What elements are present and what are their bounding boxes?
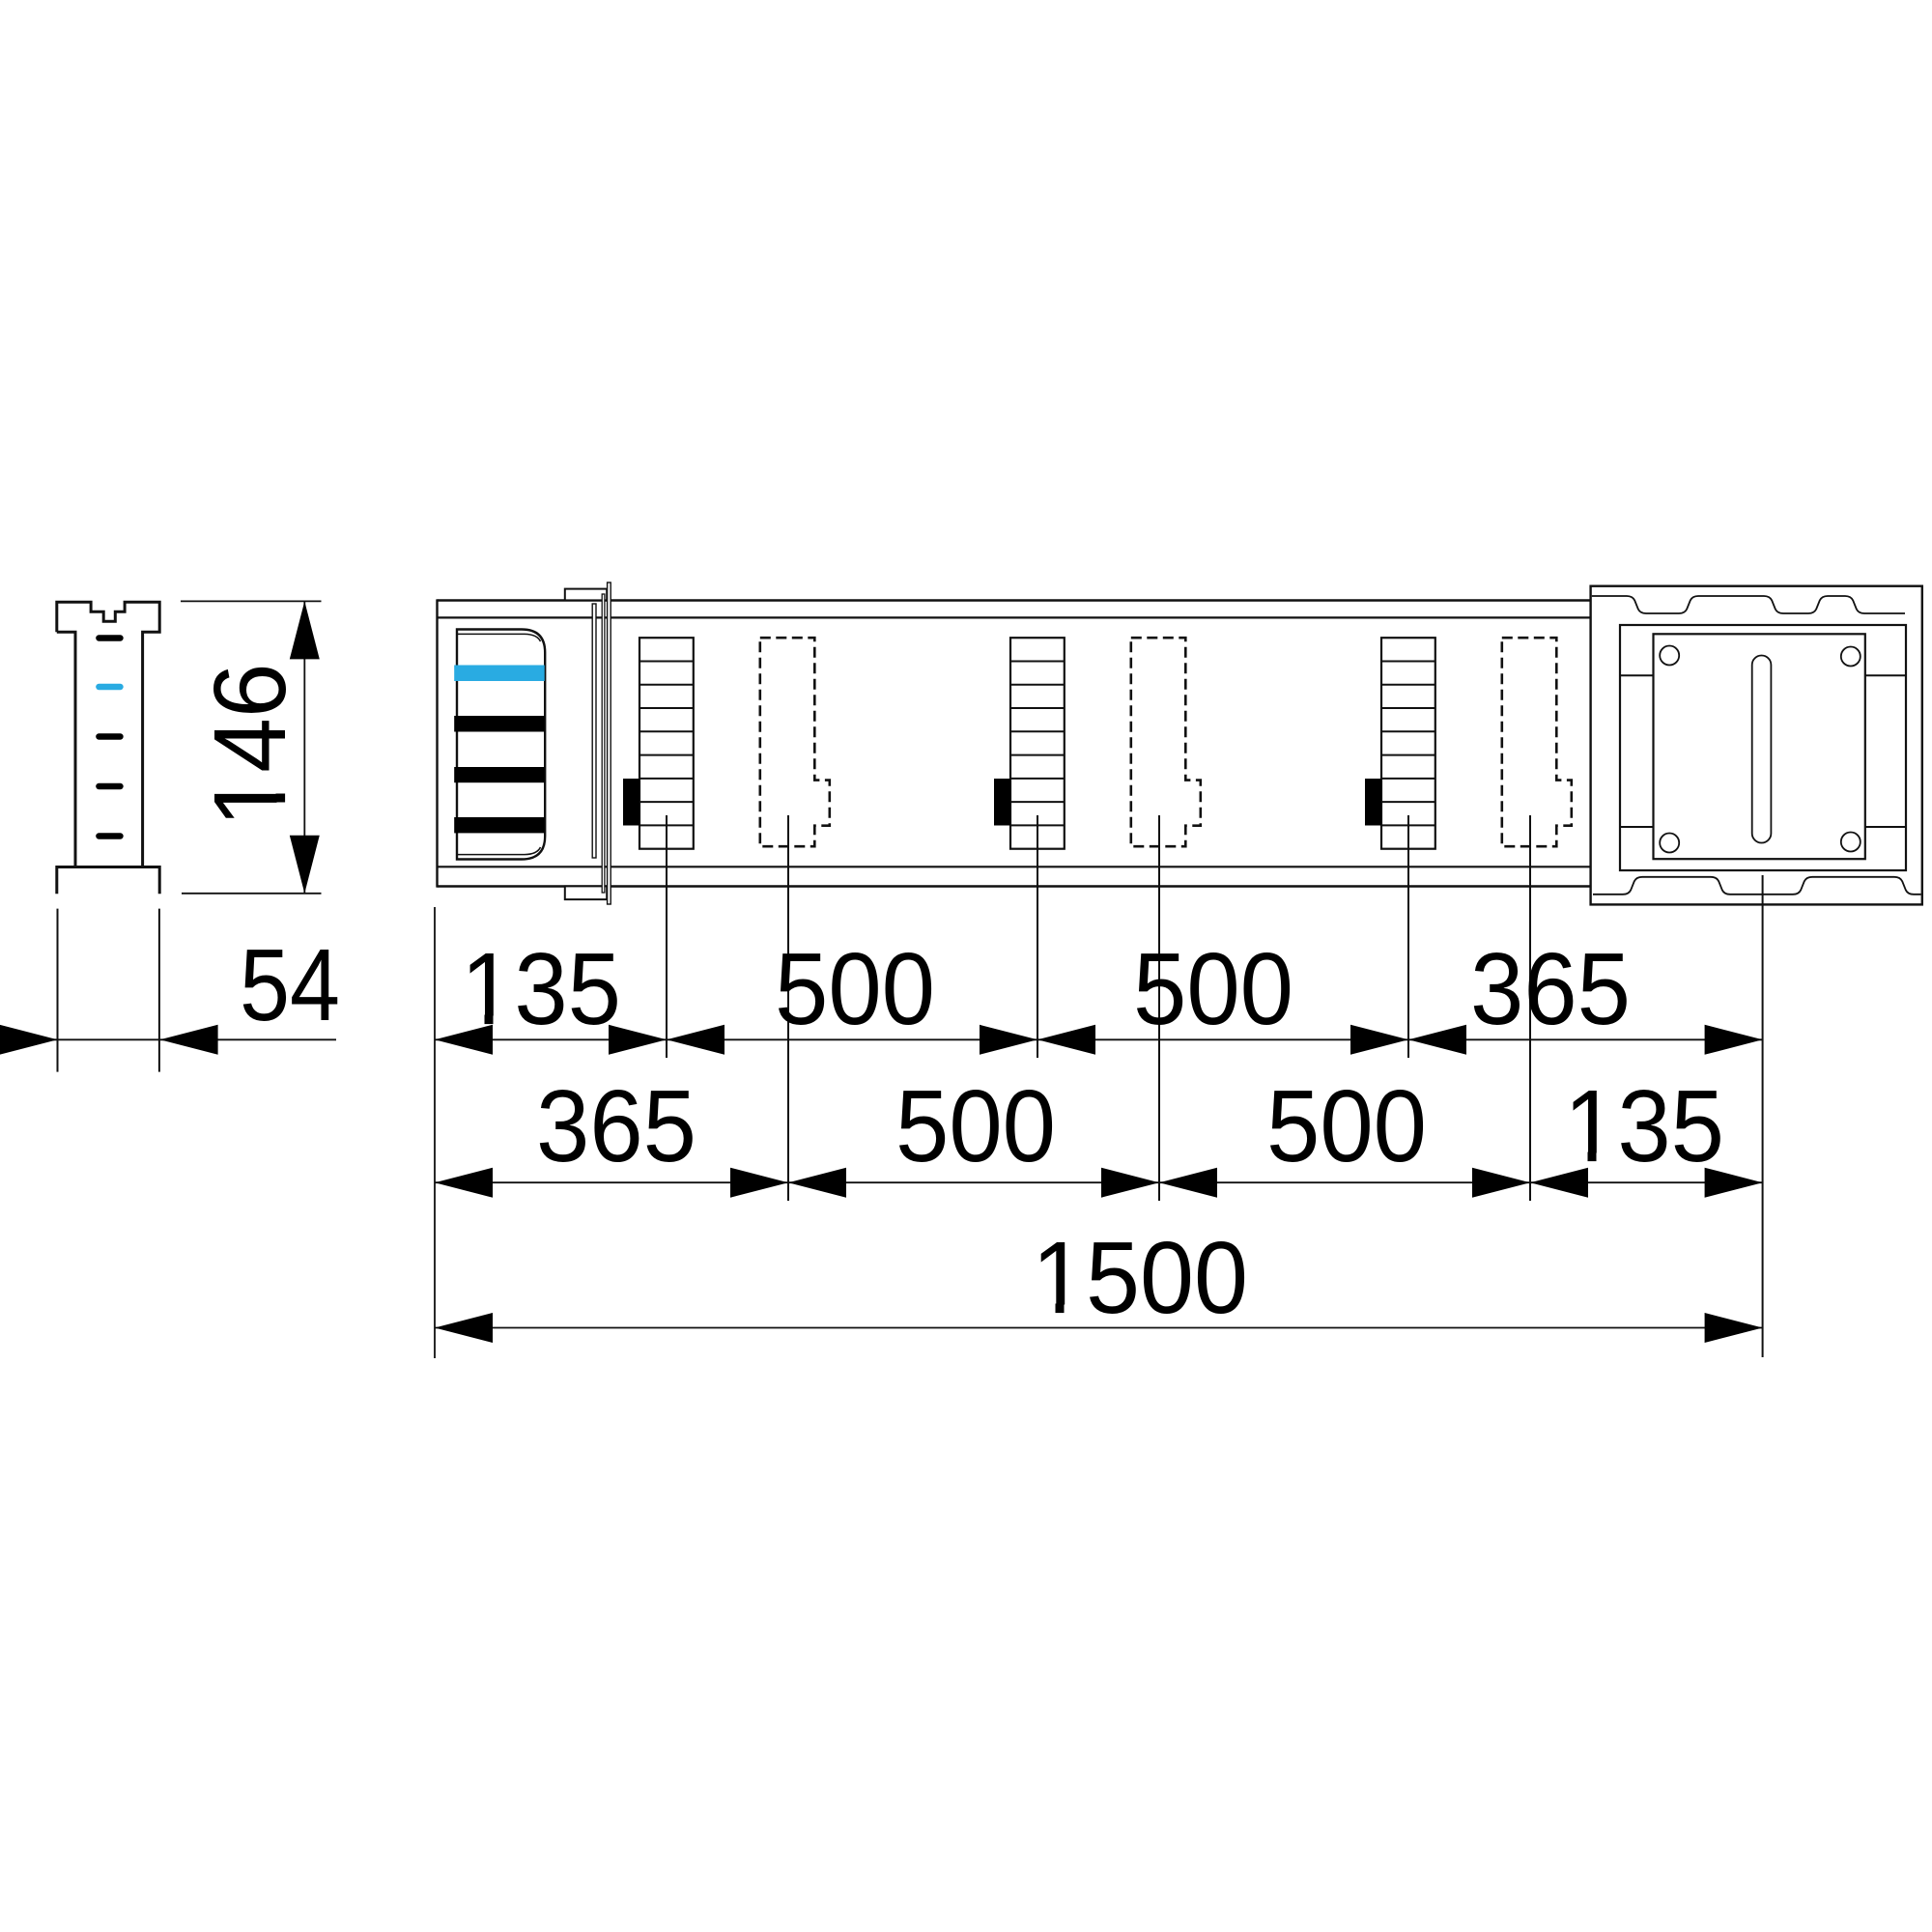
svg-text:365: 365 <box>1470 932 1631 1046</box>
svg-text:54: 54 <box>240 928 340 1042</box>
svg-text:500: 500 <box>895 1069 1056 1183</box>
svg-text:135: 135 <box>461 932 621 1046</box>
svg-text:135: 135 <box>1564 1069 1724 1183</box>
svg-text:365: 365 <box>536 1069 696 1183</box>
svg-text:146: 146 <box>193 664 307 828</box>
svg-text:500: 500 <box>775 932 935 1046</box>
svg-text:500: 500 <box>1133 932 1293 1046</box>
svg-text:500: 500 <box>1266 1069 1427 1183</box>
svg-text:1500: 1500 <box>1032 1221 1248 1335</box>
